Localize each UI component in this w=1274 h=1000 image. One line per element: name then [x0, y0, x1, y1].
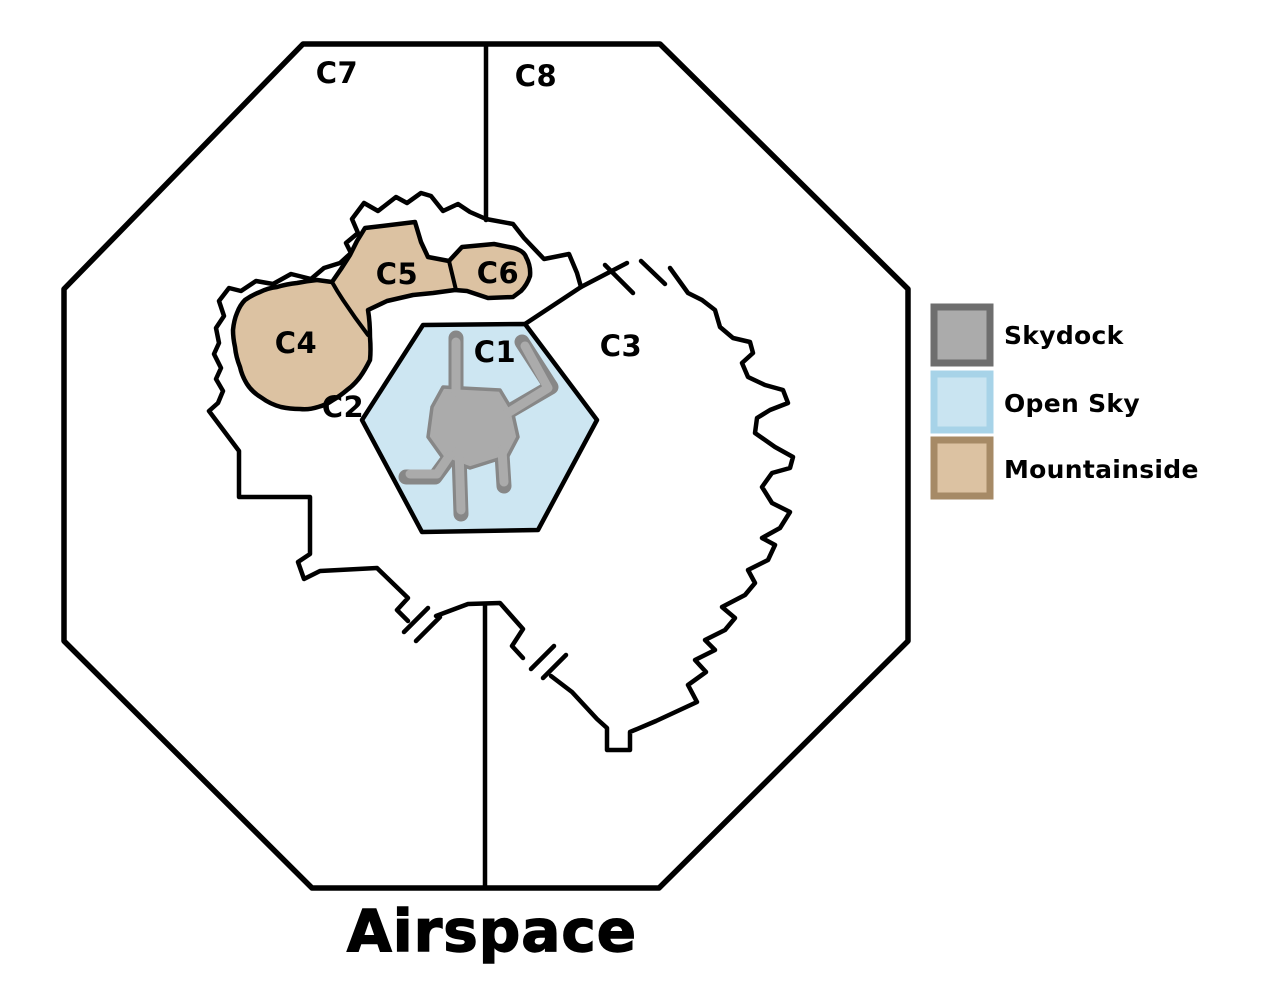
legend: Skydock Open Sky Mountainside [934, 307, 1199, 496]
legend-label-mountainside: Mountainside [1004, 455, 1199, 484]
map-title: Airspace [347, 897, 637, 965]
legend-label-skydock: Skydock [1004, 321, 1125, 350]
legend-label-open-sky: Open Sky [1004, 389, 1140, 418]
legend-swatch-open-sky [934, 374, 990, 430]
legend-item-mountainside: Mountainside [934, 440, 1199, 496]
legend-item-skydock: Skydock [934, 307, 1125, 363]
region-label-c4: C4 [275, 326, 317, 360]
region-label-c5: C5 [376, 257, 418, 291]
region-label-c2: C2 [322, 390, 364, 424]
legend-swatch-mountainside [934, 440, 990, 496]
region-label-c8: C8 [515, 59, 557, 93]
region-label-c6: C6 [477, 256, 519, 290]
region-label-c1: C1 [474, 335, 516, 369]
region-label-c3: C3 [600, 329, 642, 363]
legend-item-open-sky: Open Sky [934, 374, 1140, 430]
legend-swatch-skydock [934, 307, 990, 363]
airspace-map: C7 C8 C5 C6 C4 C1 C3 C2 Skydock Open Sky… [0, 0, 1274, 1000]
region-label-c7: C7 [316, 56, 358, 90]
c2-c3-divider [525, 287, 581, 324]
